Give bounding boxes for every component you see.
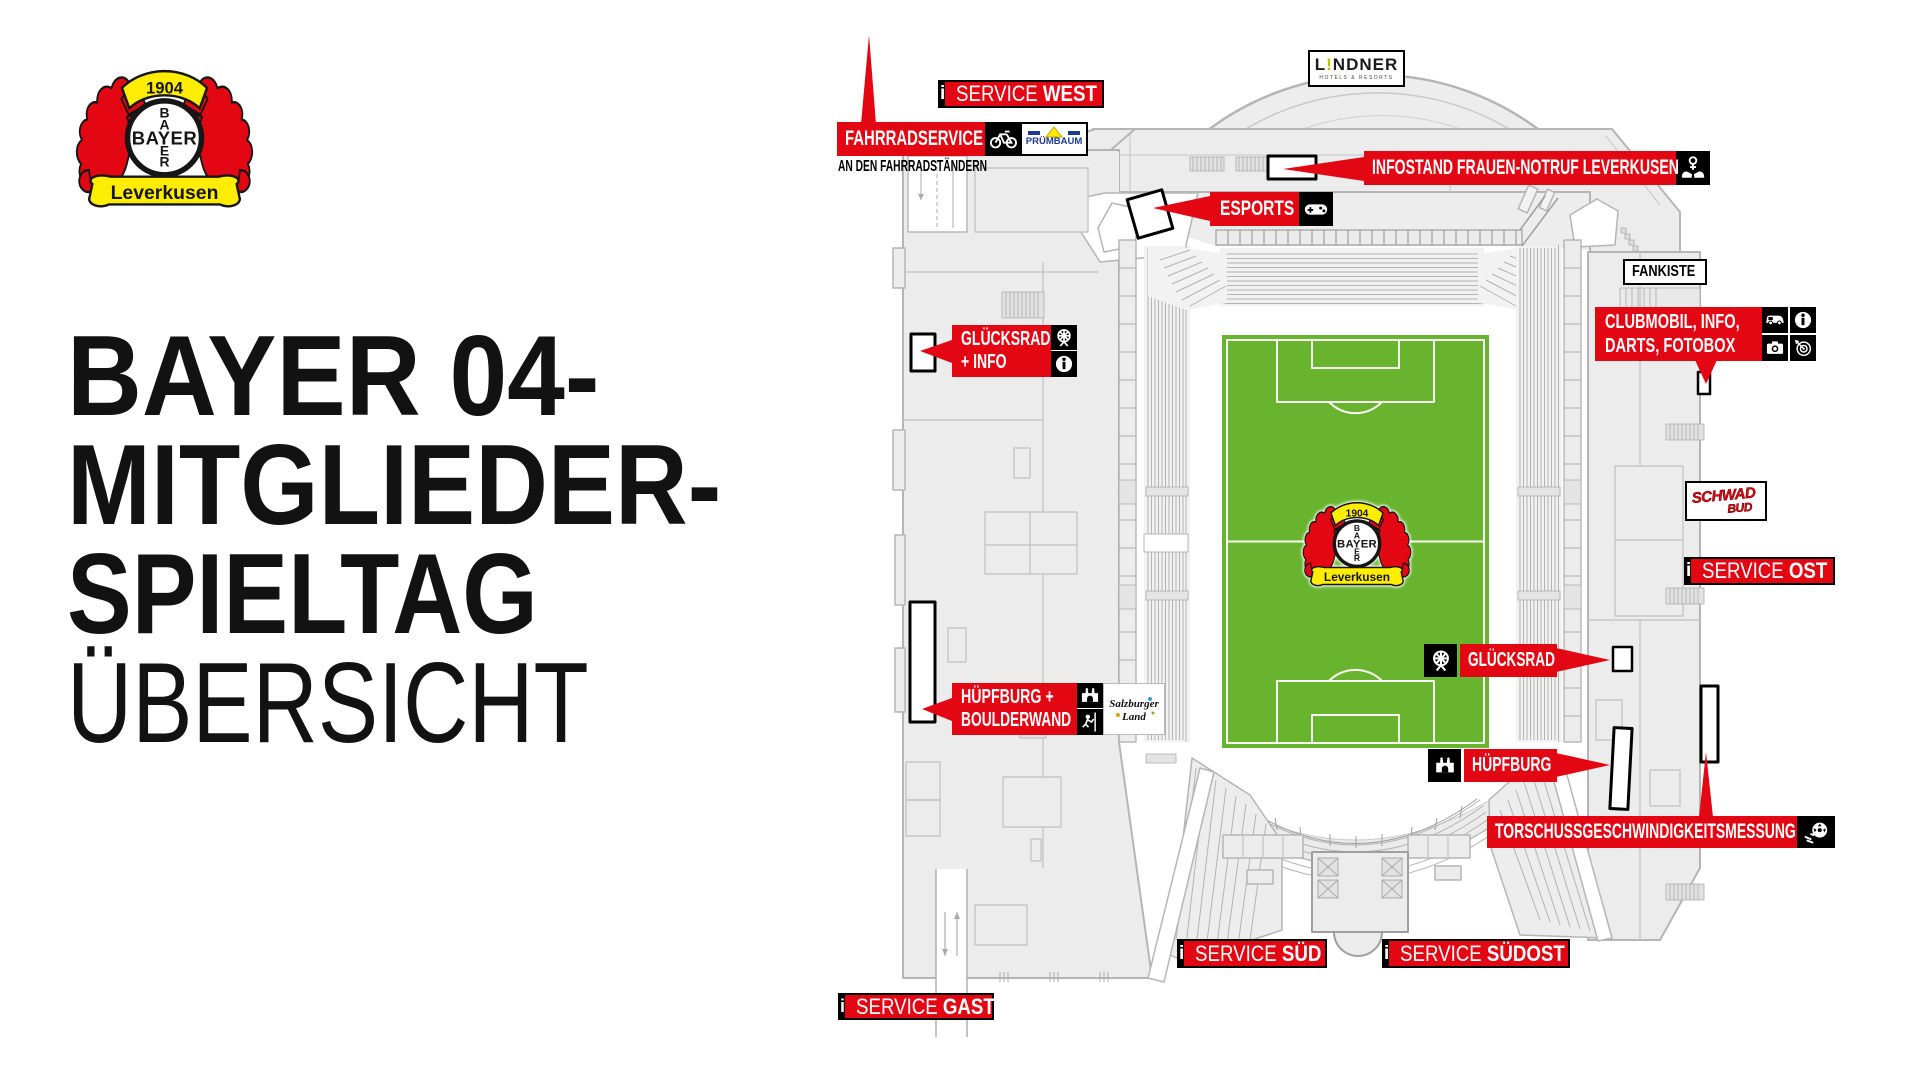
- svg-text:Salzburger: Salzburger: [1109, 698, 1159, 710]
- svg-text:Land: Land: [1121, 711, 1146, 723]
- svg-text:PRÜMBAUM: PRÜMBAUM: [1026, 136, 1083, 147]
- svg-text:BUD: BUD: [1727, 500, 1753, 516]
